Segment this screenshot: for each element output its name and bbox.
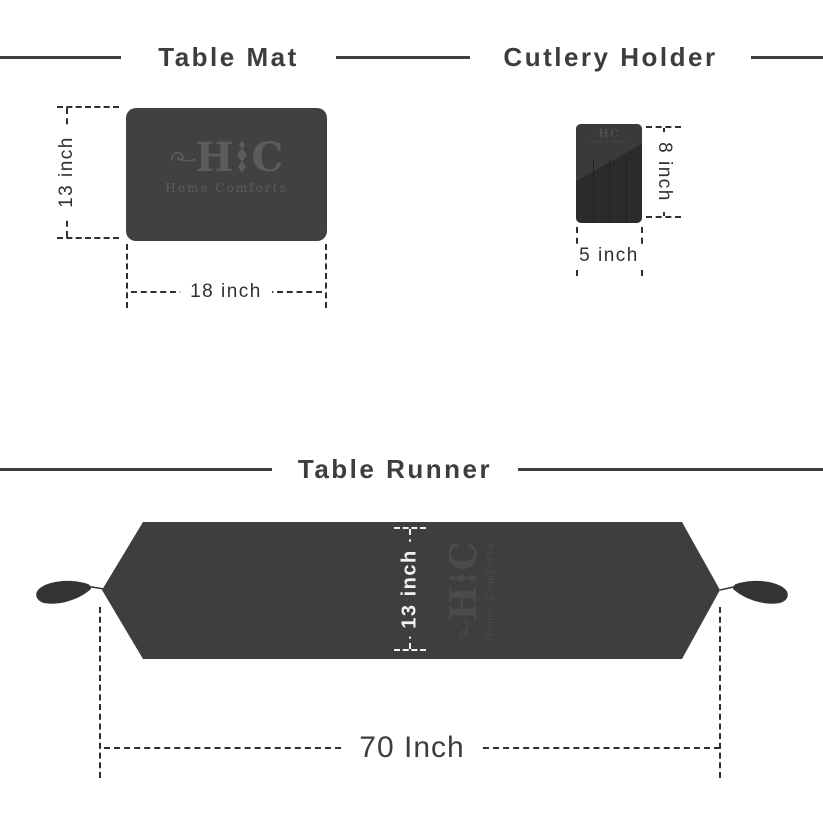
- runner-width-rule-right: [483, 747, 720, 749]
- logo-monogram-small: HC: [598, 128, 619, 139]
- mat-width-line-right: [325, 244, 327, 308]
- divider-line: [0, 56, 121, 59]
- logo-swirl-icon: [455, 620, 474, 642]
- holder-fold-line: [609, 160, 610, 223]
- runner-width-line-left: [99, 607, 101, 778]
- cutlery-holder-title: Cutlery Holder: [470, 42, 751, 73]
- runner-width-dimension: 70 Inch: [104, 730, 720, 766]
- table-mat-title: Table Mat: [121, 42, 336, 73]
- holder-fold-line: [593, 160, 594, 223]
- logo-ornament-icon: [234, 141, 250, 175]
- divider-line: [751, 56, 823, 59]
- table-mat-graphic: H C Home Comforts: [126, 108, 327, 241]
- runner-height-label: 13 inch: [399, 541, 422, 636]
- logo-monogram-h: H: [446, 586, 482, 620]
- runner-height-tick-bottom: [394, 649, 426, 651]
- table-runner-title: Table Runner: [272, 454, 518, 485]
- logo-wordmark: Home Comforts: [165, 181, 287, 195]
- brand-logo-rotated: H C Home Comforts: [446, 532, 510, 652]
- logo-monogram-c: C: [251, 138, 283, 178]
- logo-ornament-icon: [449, 571, 479, 585]
- holder-fold-line: [626, 160, 627, 223]
- mat-height-tick-bottom: [57, 237, 119, 239]
- logo-swirl-icon: [170, 147, 196, 169]
- cutlery-holder-graphic: HC Home Comforts: [576, 124, 642, 223]
- tassel-right-icon: [716, 573, 792, 609]
- logo-wordmark-small: Home Comforts: [590, 139, 629, 144]
- logo-wordmark: Home Comforts: [485, 542, 496, 642]
- mat-height-label: 13 inch: [56, 126, 78, 218]
- holder-height-tick-bottom: [646, 216, 681, 218]
- product-dimension-diagram: Table Mat Cutlery Holder H C Home Comfor…: [0, 0, 823, 823]
- logo-monogram-c: C: [446, 542, 482, 571]
- divider-line: [336, 56, 470, 59]
- mat-width-label: 18 inch: [180, 281, 272, 303]
- divider-line: [518, 468, 823, 471]
- runner-width-rule-left: [104, 747, 341, 749]
- logo-monogram-h: H: [196, 138, 234, 178]
- holder-width-label: 5 inch: [575, 245, 643, 267]
- holder-height-label: 8 inch: [653, 132, 675, 212]
- brand-logo: H C Home Comforts: [126, 138, 327, 195]
- brand-logo-small: HC Home Comforts: [576, 128, 642, 144]
- runner-width-label: 70 Inch: [341, 731, 482, 765]
- mat-width-line-left: [126, 244, 128, 308]
- tassel-left-icon: [34, 577, 106, 611]
- divider-line: [0, 468, 272, 471]
